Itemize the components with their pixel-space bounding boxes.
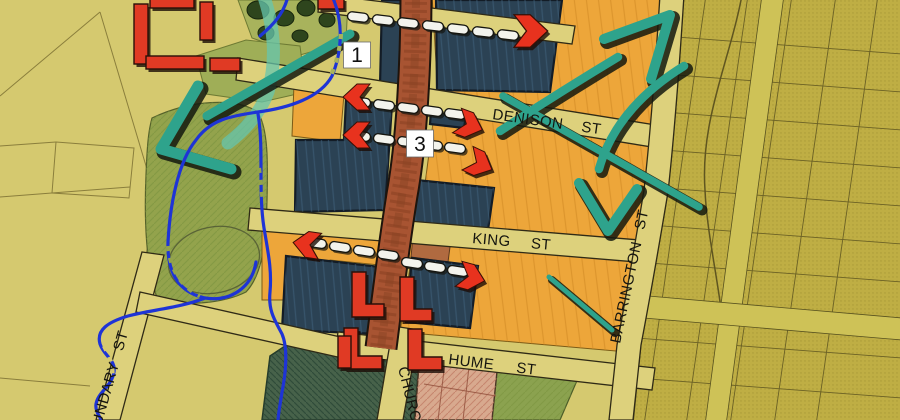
building-courtyard-south xyxy=(146,56,204,69)
building-top xyxy=(318,0,344,9)
building-courtyard-west xyxy=(134,4,148,64)
building-courtyard-south2 xyxy=(210,58,240,71)
building-hume-strip xyxy=(338,336,351,368)
building-courtyard-north xyxy=(150,0,194,8)
building-courtyard-east xyxy=(200,2,213,40)
plan-marker-1: 1 xyxy=(344,42,371,68)
plan-marker-1-label: 1 xyxy=(351,44,363,67)
plan-map-canvas: DENISON ST KING ST HUME ST BARRINGTON ST… xyxy=(0,0,900,420)
plan-marker-3-label: 3 xyxy=(414,133,426,156)
plan-marker-3: 3 xyxy=(407,130,434,157)
